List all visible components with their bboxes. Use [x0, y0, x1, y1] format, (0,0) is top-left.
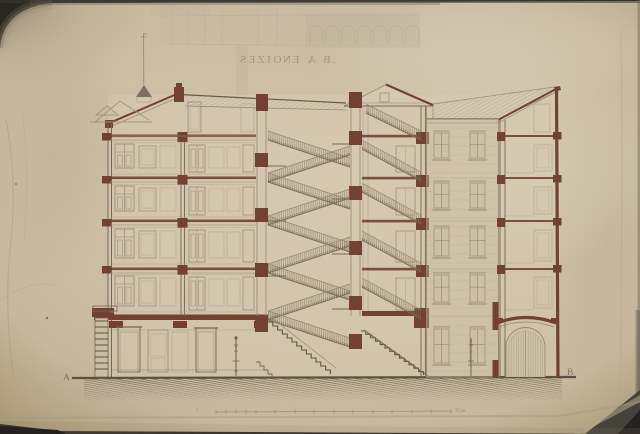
svg-text:A: A	[308, 54, 316, 66]
svg-text:E: E	[292, 54, 299, 66]
svg-text:B: B	[323, 54, 330, 66]
svg-text:S: S	[240, 54, 246, 66]
svg-text:.: .	[332, 54, 335, 66]
svg-text:E: E	[248, 54, 255, 66]
svg-text:O: O	[273, 54, 281, 66]
svg-text:B: B	[567, 368, 573, 378]
svg-text:I: I	[267, 54, 271, 66]
svg-text:N: N	[283, 54, 291, 66]
svg-text:25 m: 25 m	[455, 409, 465, 414]
svg-text:Z: Z	[257, 54, 264, 66]
svg-text:A: A	[63, 373, 70, 383]
